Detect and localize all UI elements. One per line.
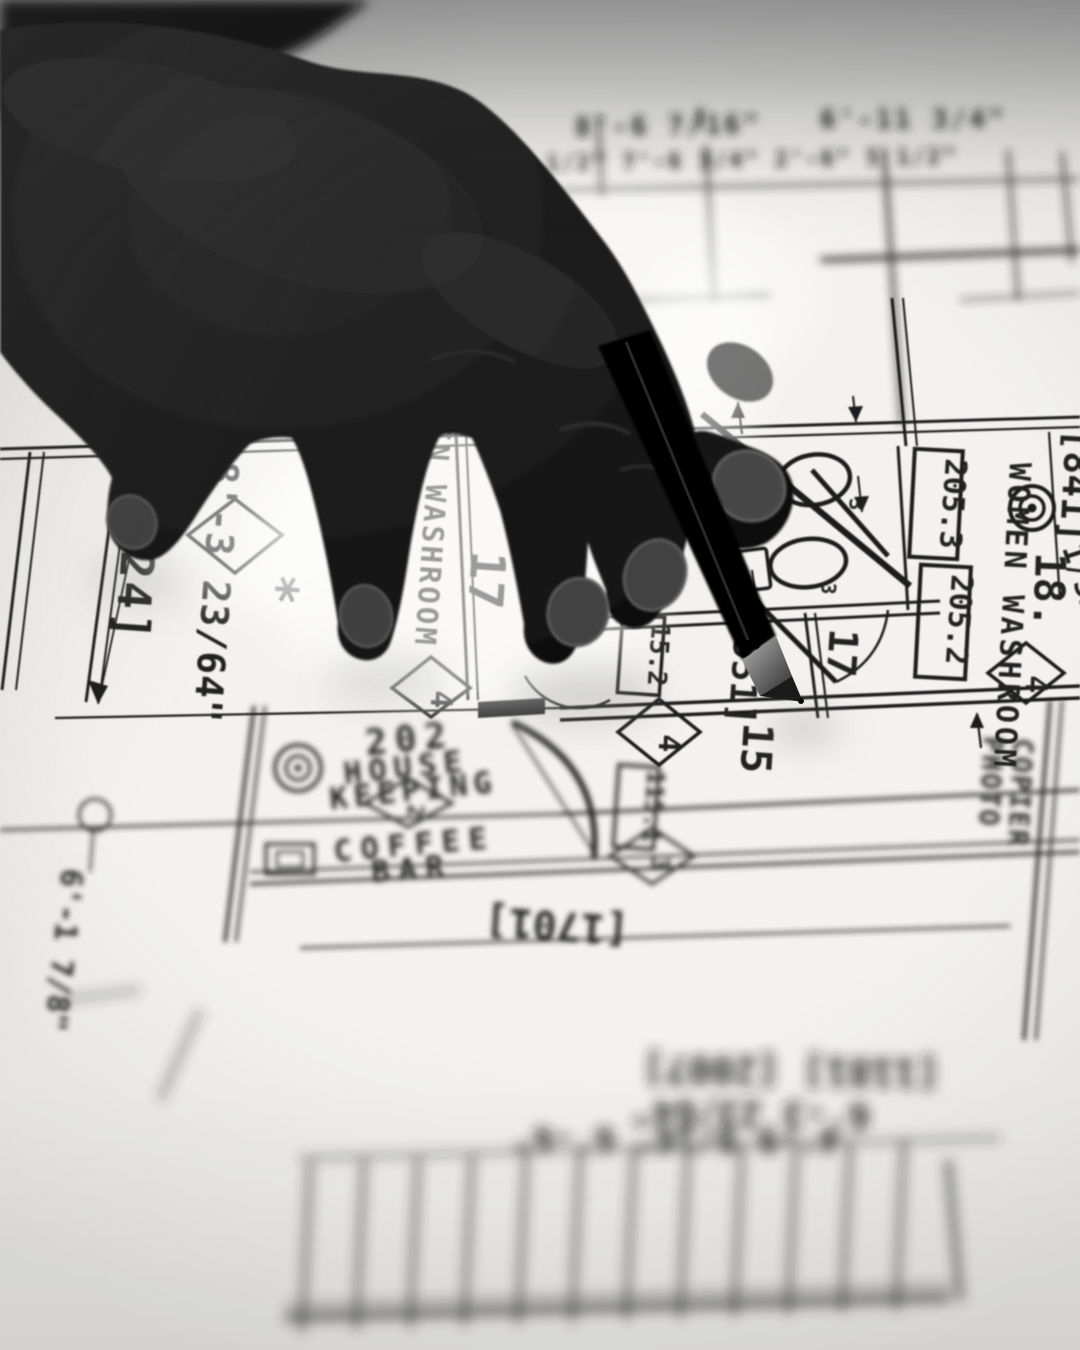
knuckle-highlight: [696, 330, 785, 414]
photo-stage: 8'-6 7/16" 6'-11 3/4" 4'-0 1/2" 7'-6 3/4…: [0, 0, 1080, 1350]
hand-layer: [0, 0, 1080, 1350]
pen-point: [798, 698, 804, 704]
